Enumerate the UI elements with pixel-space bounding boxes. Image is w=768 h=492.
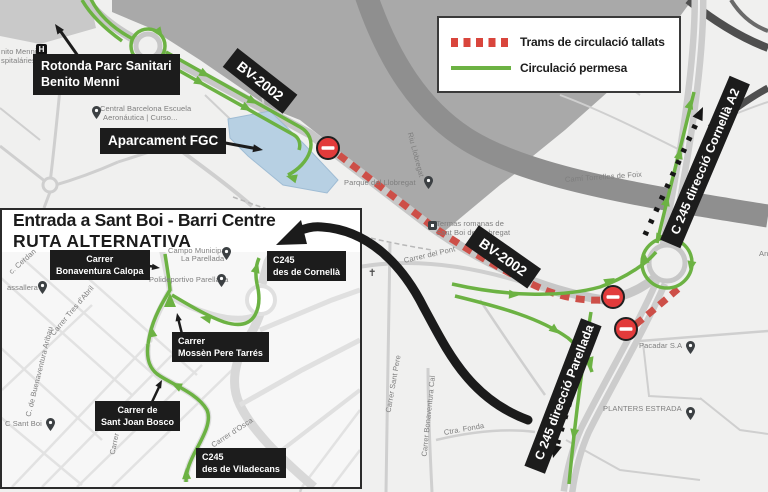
traffic-closure-map: Entrada a Sant Boi - Barri Centre RUTA A… [0,0,768,492]
legend-allowed-label: Circulació permesa [520,61,627,75]
legend-closed-label: Trams de circulació tallats [520,35,665,49]
street-label: C Sant Boi [5,419,42,428]
legend: Trams de circulació tallats Circulació p… [437,16,681,93]
allowed-route-swatch-icon [451,66,511,70]
legend-row-allowed: Circulació permesa [451,55,679,81]
church-icon: ✝ [368,268,376,279]
map-pin-icon [46,418,55,431]
map-pin-icon [424,176,433,189]
label-carrer-mossen-pere-tarres: Carrer Mossèn Pere Tarrés [172,332,269,362]
street-label: Central Barcelona Escuela [100,104,191,113]
map-pin-icon [38,281,47,294]
map-pin-icon [686,407,695,420]
label-carrer-bonaventura-calopa: Carrer Bonaventura Calopa [50,250,150,280]
legend-row-closed: Trams de circulació tallats [451,29,679,55]
street-label: assallera [7,283,38,292]
street-label: PLANTERS ESTRADA [603,404,682,413]
label-c245-des-de-viladecans: C245 des de Viladecans [196,448,286,478]
street-label: Aeronáutica | Curso... [103,113,178,122]
closed-route-swatch-icon [451,38,511,47]
label-rotonda-parc-sanitari: Rotonda Parc Sanitari Benito Menni [33,54,180,95]
inset-subtitle: RUTA ALTERNATIVA [13,231,191,252]
map-pin-icon [92,106,101,119]
street-label: Termas romanas de [436,219,504,228]
street-label: La Parellada [181,254,224,263]
street-label: spitaláries [1,56,36,65]
label-c245-des-de-cornella: C245 des de Cornellà [267,251,346,281]
map-pin-icon [222,247,231,260]
map-pin-icon [686,341,695,354]
map-pin-icon [217,274,226,287]
street-label: An [759,249,768,258]
inset-title: Entrada a Sant Boi - Barri Centre [13,210,275,231]
label-aparcament-fgc: Aparcament FGC [100,128,226,154]
street-label: Parque del Llobregat [344,178,416,187]
label-carrer-de-sant-joan-bosco: Carrer de Sant Joan Bosco [95,401,180,431]
poi-square-icon [428,221,437,230]
street-label: Pacadar S.A [639,341,682,350]
